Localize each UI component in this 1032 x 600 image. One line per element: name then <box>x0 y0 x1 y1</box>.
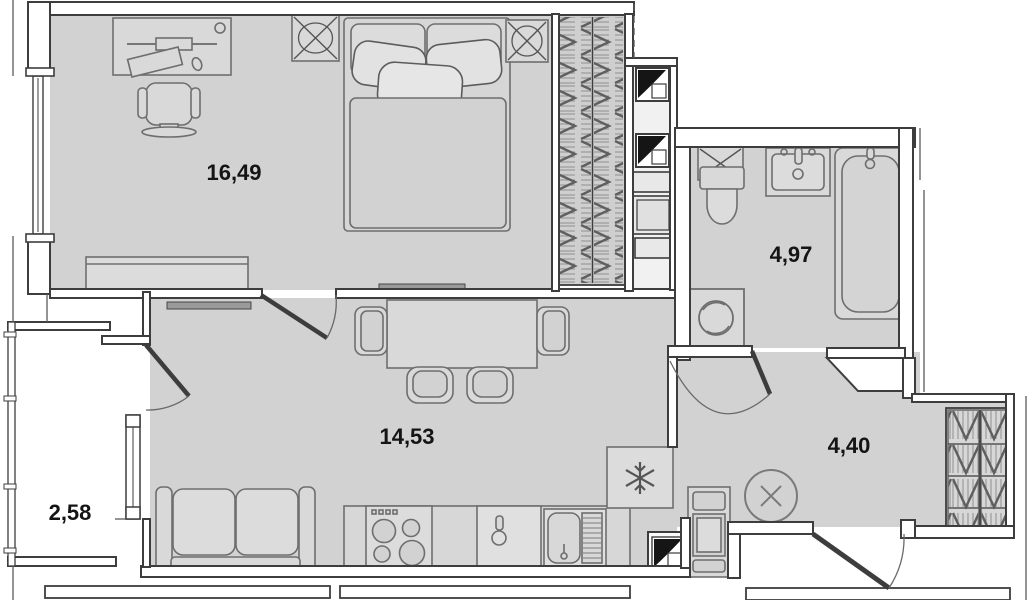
balcony-wall <box>8 557 116 566</box>
fridge <box>607 447 673 508</box>
riser-box-inner <box>637 200 669 230</box>
bathtub <box>835 148 906 319</box>
bedroom-closet <box>558 15 625 285</box>
room-label-bathroom: 4,97 <box>770 242 813 267</box>
lower-facade-wall <box>746 588 1010 600</box>
dining-chair <box>407 367 453 403</box>
dining-table <box>387 300 537 368</box>
blanket <box>350 98 506 228</box>
wall <box>28 2 50 72</box>
wall <box>901 520 915 538</box>
dining-chair <box>537 307 569 355</box>
wall <box>675 147 690 360</box>
washing-machine <box>684 289 744 348</box>
duct-shaft <box>633 68 673 258</box>
balcony-wall <box>102 336 150 344</box>
wall <box>625 14 633 291</box>
floor-plan-svg: 16,49 14,53 4,97 4,40 2,58 <box>0 0 1032 600</box>
wall <box>903 358 915 398</box>
wardrobe-x-box <box>292 15 339 61</box>
wall <box>899 128 913 360</box>
floor-plan: 16,49 14,53 4,97 4,40 2,58 <box>0 0 1032 600</box>
wall <box>552 14 559 291</box>
stove <box>366 506 432 568</box>
kitchen-basin-unit <box>544 509 606 567</box>
hallway-wardrobe <box>946 408 1012 528</box>
lower-facade-wall <box>45 586 330 598</box>
wall <box>905 526 1014 538</box>
tv-living <box>167 302 251 309</box>
room-label-bedroom: 16,49 <box>206 160 261 185</box>
bed <box>344 18 510 231</box>
faucet-icon <box>496 516 503 530</box>
desk-lamp-icon <box>215 23 225 33</box>
desk <box>113 18 231 77</box>
bathroom-sink <box>766 148 830 196</box>
wall <box>827 348 905 358</box>
wall <box>668 346 752 357</box>
riser-box <box>635 238 671 258</box>
faucet-icon <box>867 148 874 159</box>
balcony-window <box>126 415 140 519</box>
dining-chair <box>467 367 513 403</box>
balcony-wall <box>8 322 110 330</box>
office-chair <box>138 83 200 137</box>
kitchen-sink-cabinet <box>477 506 541 568</box>
wall <box>728 534 740 578</box>
wall <box>912 394 1014 402</box>
low-cabinet <box>86 257 248 290</box>
riser-box <box>633 172 673 192</box>
wall <box>28 2 634 15</box>
wall <box>141 566 690 577</box>
dining-chair <box>355 307 387 355</box>
room-label-balcony: 2,58 <box>49 500 92 525</box>
shoe-cabinet <box>688 487 730 577</box>
entrance-door <box>813 534 904 588</box>
wall <box>28 238 50 294</box>
faucet-icon <box>795 148 802 164</box>
lower-facade-wall <box>340 586 630 598</box>
ceiling-light-icon <box>745 470 797 522</box>
balcony-glazing-wall <box>8 322 15 566</box>
wall <box>728 522 813 534</box>
bedroom-window <box>26 68 54 242</box>
duct-flag-box <box>636 134 669 167</box>
wall <box>625 58 677 66</box>
room-label-hallway: 4,40 <box>828 433 871 458</box>
wall <box>675 128 915 147</box>
sofa <box>156 487 315 577</box>
wall <box>50 289 262 298</box>
wall <box>1006 394 1014 534</box>
wall <box>681 518 690 568</box>
wall <box>143 519 150 567</box>
cabinet-x-box <box>506 20 548 62</box>
duct-flag-box <box>636 68 669 101</box>
room-label-living-kitchen: 14,53 <box>379 424 434 449</box>
